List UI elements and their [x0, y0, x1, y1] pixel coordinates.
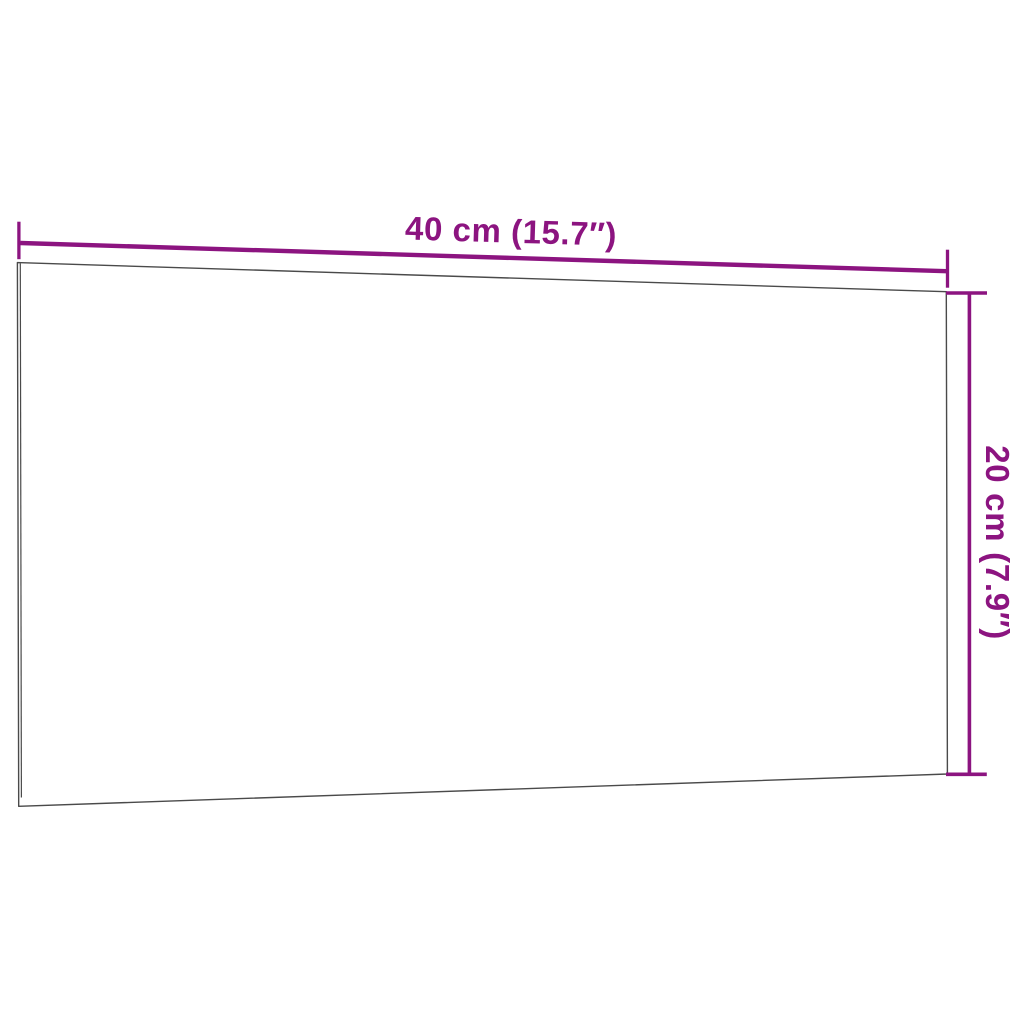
svg-text:20 cm (7.9″): 20 cm (7.9″) — [979, 445, 1016, 640]
svg-text:40 cm (15.7″): 40 cm (15.7″) — [405, 209, 618, 252]
